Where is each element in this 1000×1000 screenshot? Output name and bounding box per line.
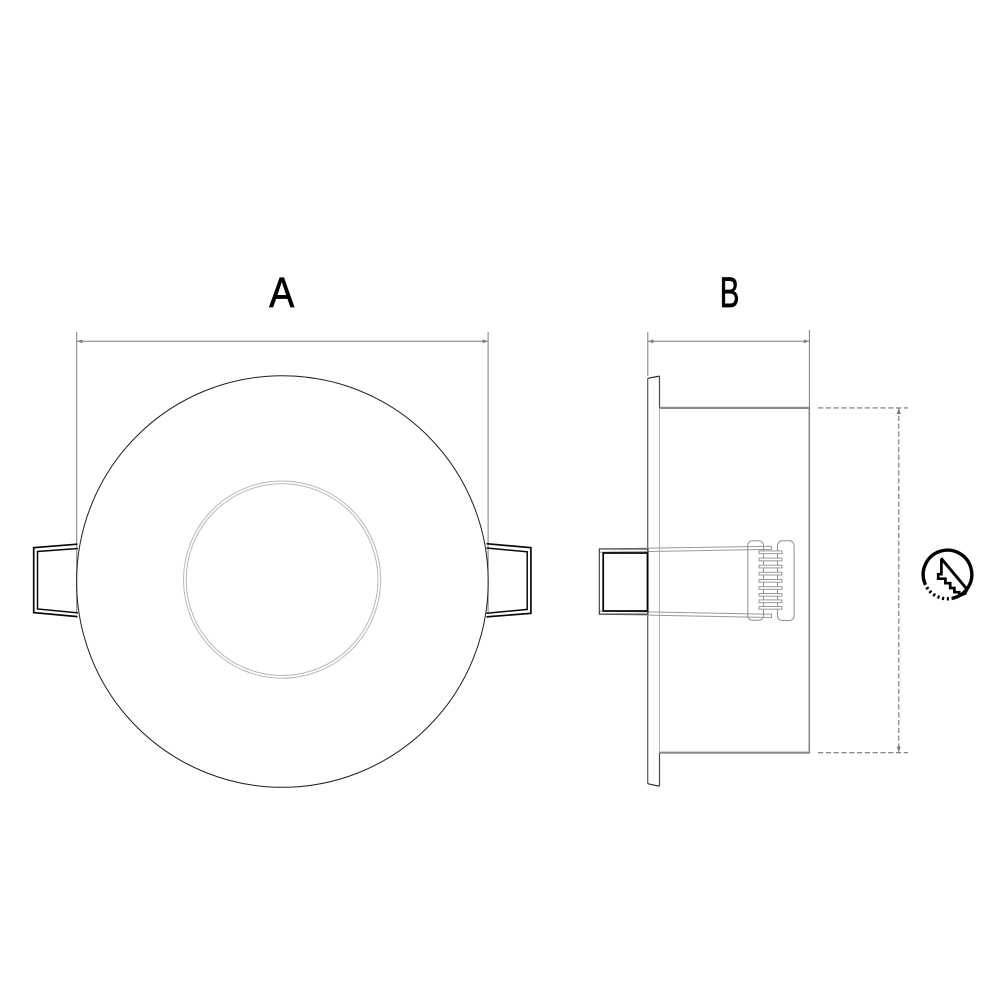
svg-text:B: B bbox=[720, 270, 740, 317]
svg-text:A: A bbox=[269, 270, 295, 317]
